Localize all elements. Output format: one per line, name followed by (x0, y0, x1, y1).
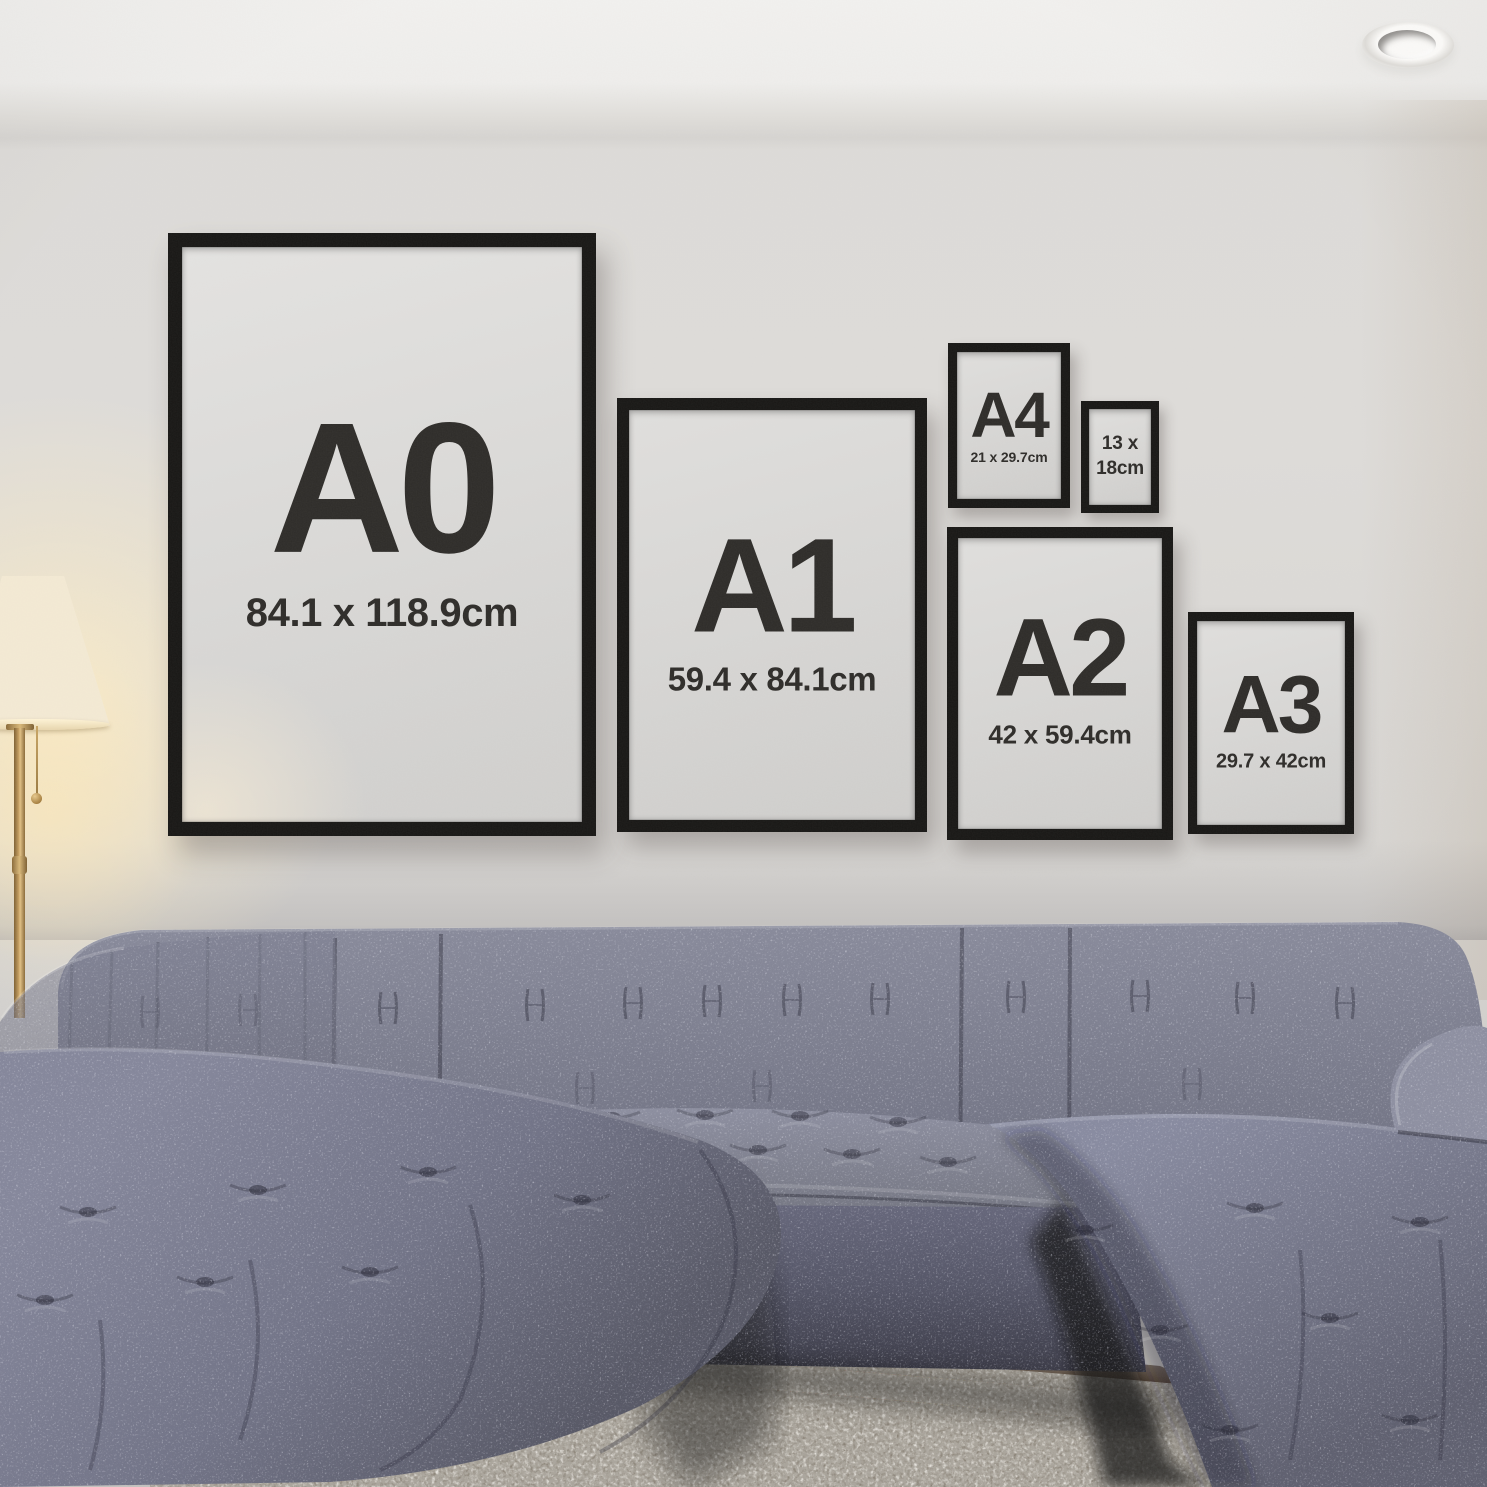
frame-a2-label: A2 (994, 608, 1127, 709)
frame-a2: A2 42 x 59.4cm (947, 527, 1173, 840)
recessed-ceiling-light (1362, 22, 1454, 68)
lamp-pull-chain-ball (31, 793, 42, 804)
frame-a1-size: 59.4 x 84.1cm (668, 660, 877, 698)
frame-13x18: 13 x 18cm (1081, 401, 1159, 513)
frame-a2-mat: A2 42 x 59.4cm (958, 538, 1162, 829)
frame-13x18-text: 13 x 18cm (1096, 432, 1144, 481)
lamp-pole-joint (12, 856, 27, 874)
frame-a1-label: A1 (691, 525, 853, 648)
frame-a3: A3 29.7 x 42cm (1188, 612, 1354, 834)
frame-a3-size: 29.7 x 42cm (1216, 751, 1326, 774)
frame-a1-text: A1 59.4 x 84.1cm (668, 525, 877, 698)
frame-13x18-size-line1: 13 x (1102, 432, 1138, 457)
living-room-scene: A0 84.1 x 118.9cm A1 59.4 x 84.1cm A4 21… (0, 0, 1487, 1487)
frame-13x18-size-line2: 18cm (1096, 457, 1144, 482)
frame-13x18-mat: 13 x 18cm (1089, 409, 1151, 505)
frame-a0-size: 84.1 x 118.9cm (246, 590, 518, 635)
frame-a4-size: 21 x 29.7cm (970, 449, 1047, 465)
sofa-scene (0, 900, 1487, 1487)
frame-a0: A0 84.1 x 118.9cm (168, 233, 596, 836)
lamp-pull-chain (36, 726, 38, 794)
frame-a0-text: A0 84.1 x 118.9cm (246, 403, 518, 635)
frame-a2-size: 42 x 59.4cm (988, 719, 1131, 750)
frame-a4-label: A4 (970, 386, 1047, 445)
frame-a1-mat: A1 59.4 x 84.1cm (629, 410, 915, 820)
frame-a3-label: A3 (1221, 667, 1320, 742)
frame-a4-text: A4 21 x 29.7cm (970, 386, 1047, 466)
frame-a4-mat: A4 21 x 29.7cm (957, 352, 1061, 499)
frame-a2-text: A2 42 x 59.4cm (988, 608, 1131, 750)
frame-a3-mat: A3 29.7 x 42cm (1197, 621, 1345, 825)
frame-a0-mat: A0 84.1 x 118.9cm (182, 247, 582, 822)
frame-a3-text: A3 29.7 x 42cm (1216, 667, 1326, 773)
recessed-ceiling-light-trim (1378, 30, 1436, 59)
frame-a0-label: A0 (270, 403, 495, 574)
frame-a1: A1 59.4 x 84.1cm (617, 398, 927, 832)
frame-a4: A4 21 x 29.7cm (948, 343, 1070, 508)
